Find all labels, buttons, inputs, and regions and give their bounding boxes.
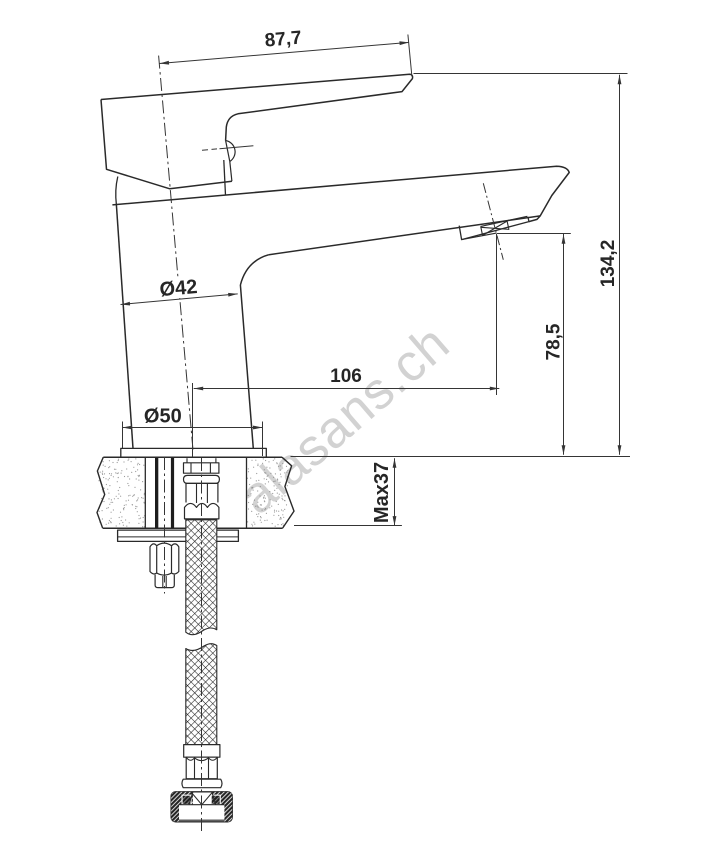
- svg-text:87,7: 87,7: [264, 28, 303, 52]
- svg-text:106: 106: [330, 366, 362, 387]
- svg-text:Ø50: Ø50: [144, 405, 182, 427]
- svg-text:78,5: 78,5: [543, 323, 564, 360]
- svg-text:Max37: Max37: [371, 462, 393, 523]
- svg-text:134,2: 134,2: [598, 240, 619, 288]
- svg-text:Ø42: Ø42: [159, 276, 199, 301]
